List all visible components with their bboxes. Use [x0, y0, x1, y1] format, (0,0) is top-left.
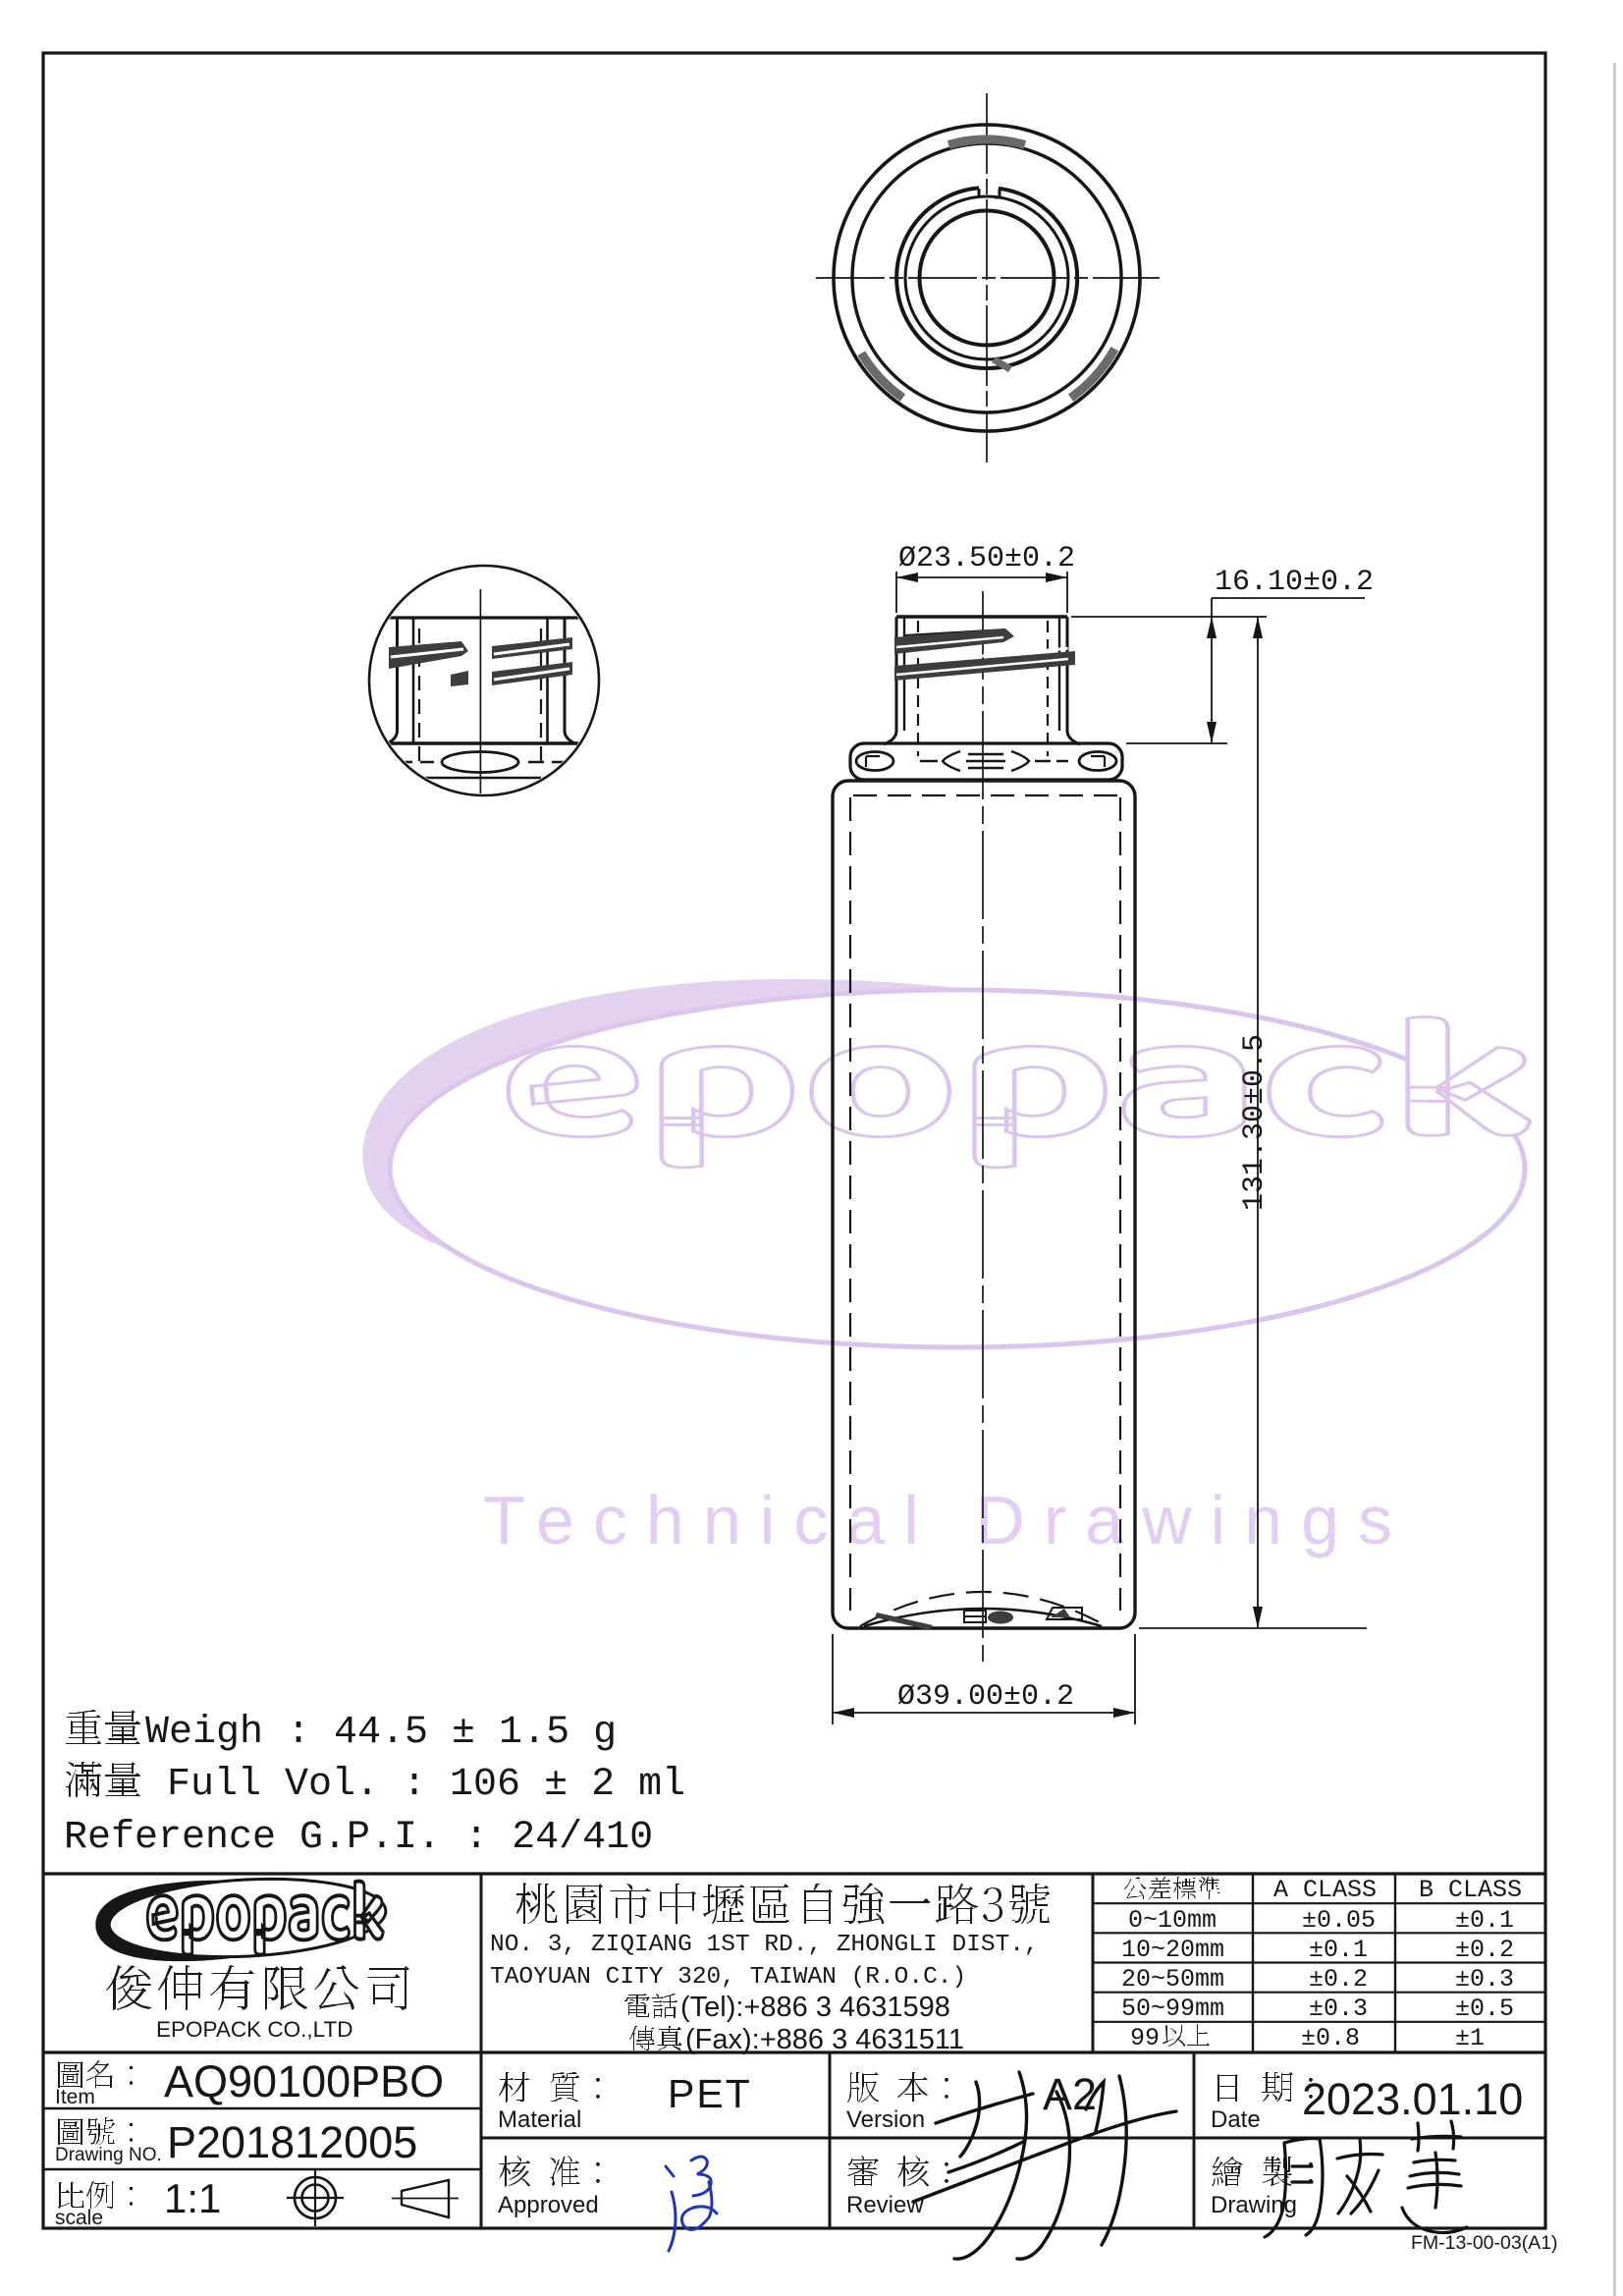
svg-text:±0.1: ±0.1 — [1455, 1906, 1514, 1935]
svg-text:Ø23.50±0.2: Ø23.50±0.2 — [898, 542, 1075, 575]
svg-text:±0.3: ±0.3 — [1455, 1965, 1514, 1994]
svg-text:±0.2: ±0.2 — [1455, 1936, 1514, 1964]
svg-text:2023.01.10: 2023.01.10 — [1302, 2074, 1523, 2124]
svg-text:Approved: Approved — [498, 2192, 599, 2218]
svg-text:Review: Review — [846, 2192, 924, 2218]
svg-text:20~50mm: 20~50mm — [1121, 1965, 1224, 1994]
svg-text:P201812005: P201812005 — [167, 2117, 417, 2167]
svg-text:AQ90100PBO: AQ90100PBO — [164, 2056, 444, 2106]
svg-text:50~99mm: 50~99mm — [1121, 1995, 1224, 2023]
svg-text:±0.5: ±0.5 — [1455, 1995, 1514, 2023]
svg-text:B CLASS: B CLASS — [1419, 1876, 1522, 1904]
svg-text:±0.3: ±0.3 — [1309, 1995, 1368, 2023]
svg-text:131.30±0.5: 131.30±0.5 — [1238, 1034, 1271, 1211]
svg-text:(Tel):+886 3 4631598: (Tel):+886 3 4631598 — [680, 1992, 950, 2023]
svg-text:Reference G.P.I. : 24/410: Reference G.P.I. : 24/410 — [64, 1816, 653, 1860]
svg-text:1:1: 1:1 — [164, 2175, 221, 2221]
svg-text:(Fax):+886 3 4631511: (Fax):+886 3 4631511 — [685, 2024, 964, 2055]
svg-text:FM-13-00-03(A1): FM-13-00-03(A1) — [1411, 2232, 1558, 2254]
svg-text:Date: Date — [1211, 2106, 1261, 2133]
svg-text:Full Vol. : 106 ± 2 ml: Full Vol. : 106 ± 2 ml — [167, 1763, 685, 1807]
svg-text:Ø39.00±0.2: Ø39.00±0.2 — [897, 1680, 1074, 1714]
svg-text:PET: PET — [668, 2071, 752, 2116]
svg-text:±0.8: ±0.8 — [1301, 2024, 1360, 2052]
svg-text:TAOYUAN CITY 320, TAIWAN (R.O.: TAOYUAN CITY 320, TAIWAN (R.O.C.) — [490, 1964, 966, 1991]
svg-text:scale: scale — [55, 2207, 103, 2229]
svg-text:±0.05: ±0.05 — [1302, 1906, 1376, 1935]
svg-text:EPOPACK CO.,LTD: EPOPACK CO.,LTD — [156, 2017, 352, 2042]
svg-text:A2: A2 — [1043, 2069, 1097, 2119]
svg-text:±0.2: ±0.2 — [1309, 1965, 1368, 1994]
svg-text:Weigh : 44.5 ± 1.5 g: Weigh : 44.5 ± 1.5 g — [145, 1711, 617, 1755]
svg-text:Version: Version — [846, 2106, 925, 2133]
svg-text:±0.1: ±0.1 — [1309, 1936, 1368, 1964]
svg-text:Item: Item — [55, 2086, 95, 2108]
svg-text:16.10±0.2: 16.10±0.2 — [1215, 566, 1374, 599]
svg-text:NO. 3, ZIQIANG 1ST RD., ZHONGL: NO. 3, ZIQIANG 1ST RD., ZHONGLI DIST., — [490, 1932, 1039, 1958]
svg-text:Technical Drawings: Technical Drawings — [483, 1482, 1411, 1558]
svg-text:±1: ±1 — [1455, 2024, 1485, 2052]
svg-text:Material: Material — [498, 2106, 581, 2133]
svg-text:10~20mm: 10~20mm — [1121, 1936, 1224, 1964]
svg-text:99: 99 — [1130, 2024, 1160, 2052]
svg-text:0~10mm: 0~10mm — [1128, 1906, 1217, 1935]
svg-text:A CLASS: A CLASS — [1273, 1876, 1377, 1904]
svg-text:Drawing NO.: Drawing NO. — [55, 2145, 162, 2165]
